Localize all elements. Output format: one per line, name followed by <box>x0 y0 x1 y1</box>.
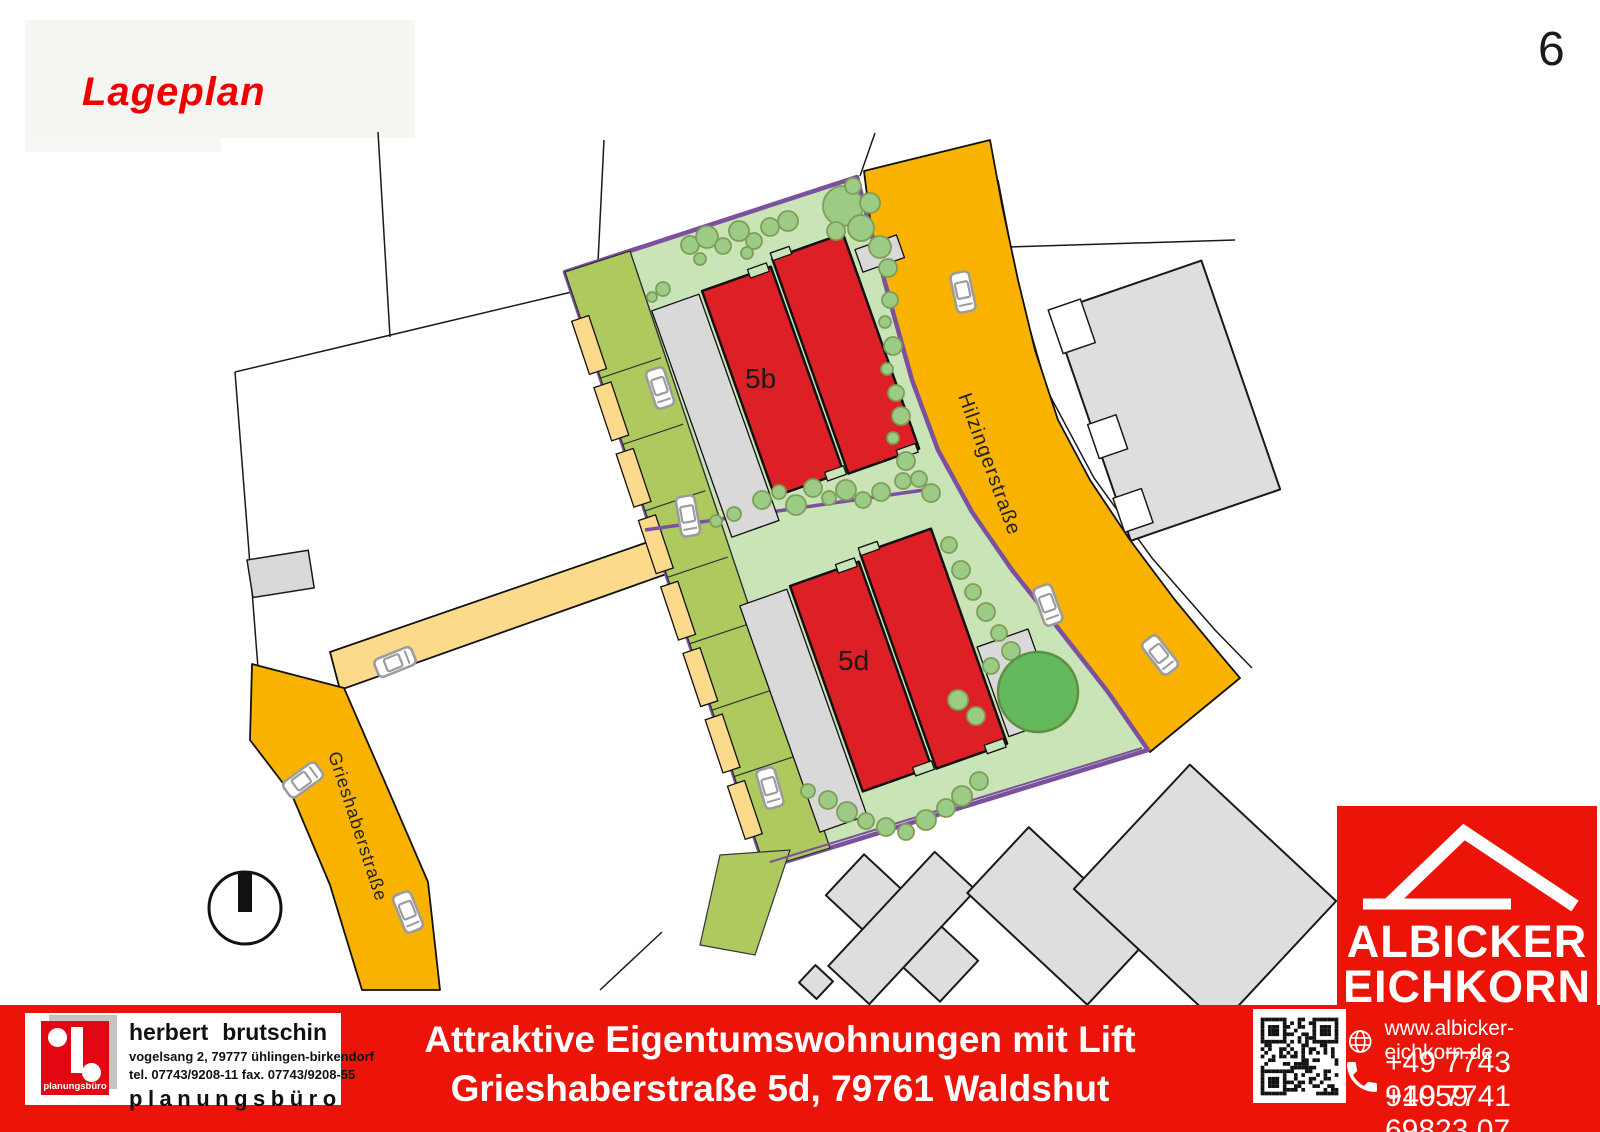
banner-title: Attraktive Eigentumswohnungen mit Lift G… <box>345 1005 1215 1132</box>
brand-line-1: ALBICKER <box>1337 919 1597 964</box>
building-label-5d: 5d <box>838 645 869 676</box>
architect-name: herbert brutschin <box>129 1019 327 1046</box>
phone-icon <box>1342 1057 1382 1097</box>
brand-line-2: EICHKORN <box>1337 964 1597 1009</box>
roof-icon <box>1351 818 1583 912</box>
architect-word: planungsbüro <box>129 1086 327 1112</box>
exposé-page: 5b 5d Hilzingerstraße Grieshaberstraße L… <box>0 0 1600 1132</box>
banner-line-1: Attraktive Eigentumswohnungen mit Lift <box>345 1019 1215 1061</box>
phone-number-2: +49 7741 69823 07 <box>1385 1080 1600 1132</box>
planungsbuero-card: planungsbüro herbert brutschin vogelsang… <box>25 1013 341 1105</box>
logo-dot-icon <box>48 1028 67 1047</box>
architect-address: vogelsang 2, 79777 ühlingen-birkendorf <box>129 1049 327 1064</box>
logo-square: planungsbüro <box>41 1021 109 1095</box>
street-grieshaberstrasse <box>250 664 440 990</box>
footer-banner: planungsbüro herbert brutschin vogelsang… <box>0 1005 1600 1132</box>
banner-line-2: Grieshaberstraße 5d, 79761 Waldshut <box>345 1068 1215 1110</box>
qr-code <box>1253 1009 1346 1103</box>
logo-bar-icon <box>71 1027 83 1073</box>
north-arrow-icon <box>209 872 281 944</box>
building-label-5b: 5b <box>745 363 776 394</box>
planungsbuero-logo: planungsbüro <box>41 1019 113 1097</box>
page-number: 6 <box>1538 22 1565 77</box>
architect-telfax: tel. 07743/9208-11 fax. 07743/9208-55 <box>129 1067 327 1082</box>
logo-dot-icon <box>82 1063 101 1082</box>
page-title: Lageplan <box>82 70 266 115</box>
globe-icon <box>1348 1028 1372 1055</box>
logo-caption: planungsbüro <box>41 1081 109 1092</box>
contact-block: www.albicker-eichkorn.de +49 7743 91059 … <box>1340 1005 1600 1132</box>
